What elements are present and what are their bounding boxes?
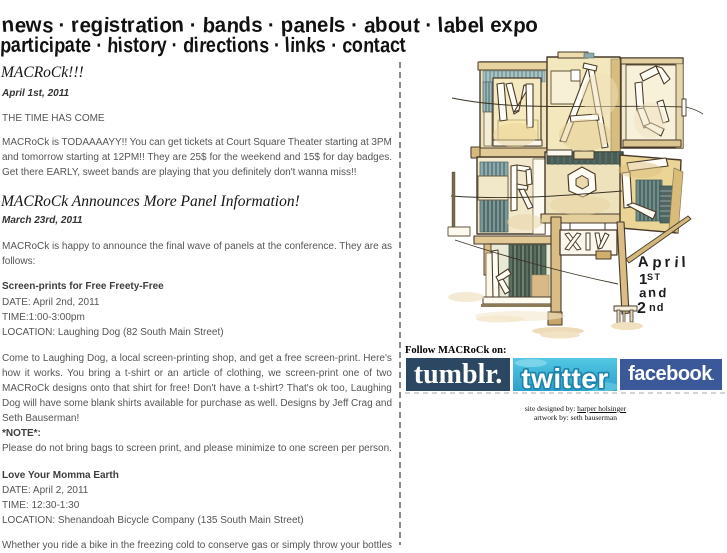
svg-text:April: April	[637, 253, 689, 272]
svg-text:ST: ST	[647, 272, 662, 282]
svg-text:nd: nd	[649, 302, 664, 314]
svg-text:twitter: twitter	[521, 363, 609, 391]
svg-text:and: and	[639, 284, 669, 300]
svg-text:participate · history · direct: participate · history · directions · lin…	[0, 33, 406, 57]
svg-text:2: 2	[637, 300, 646, 317]
